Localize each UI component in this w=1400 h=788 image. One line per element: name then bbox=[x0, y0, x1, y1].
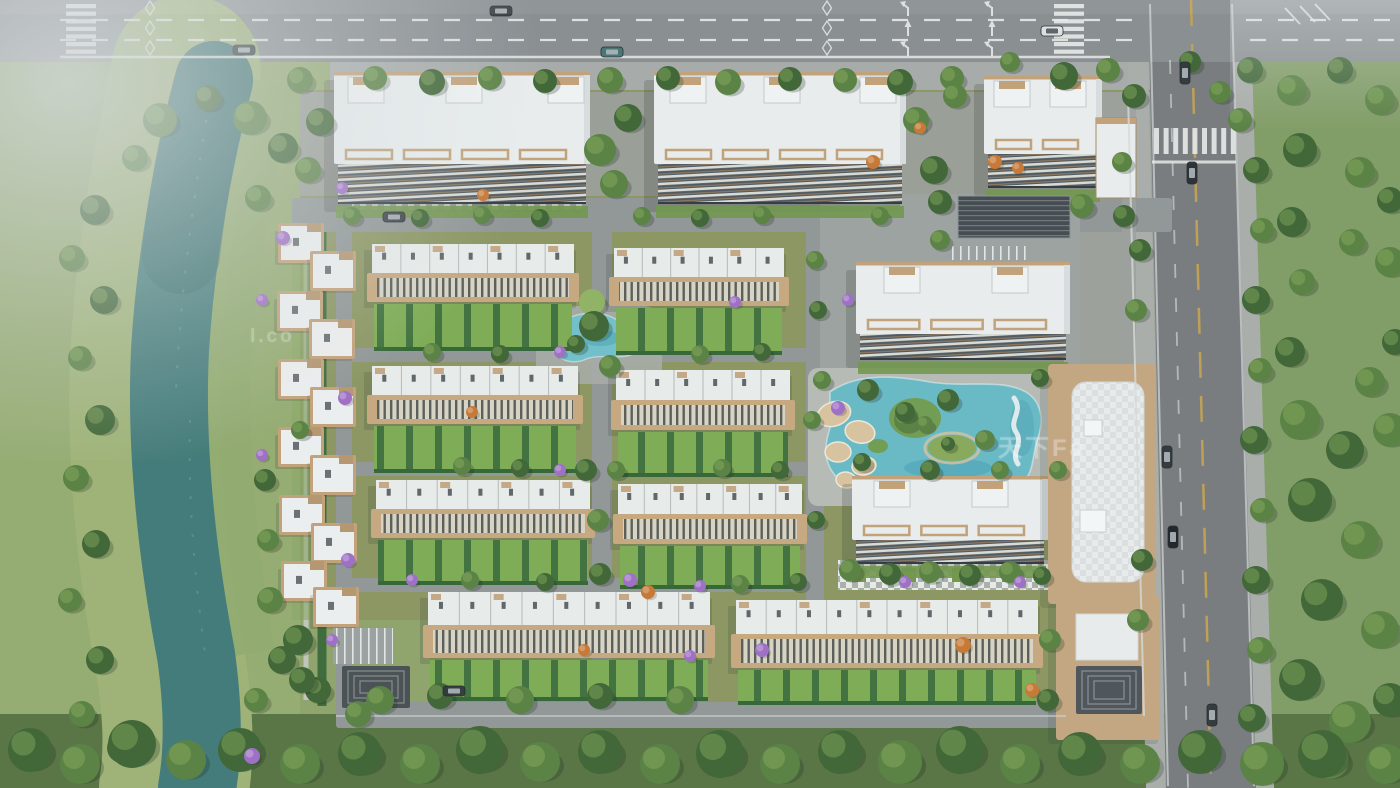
rendering-canvas bbox=[0, 0, 1400, 788]
atmosphere-layer bbox=[0, 0, 1400, 788]
aerial-site-rendering: 天下Fa l.co bbox=[0, 0, 1400, 788]
